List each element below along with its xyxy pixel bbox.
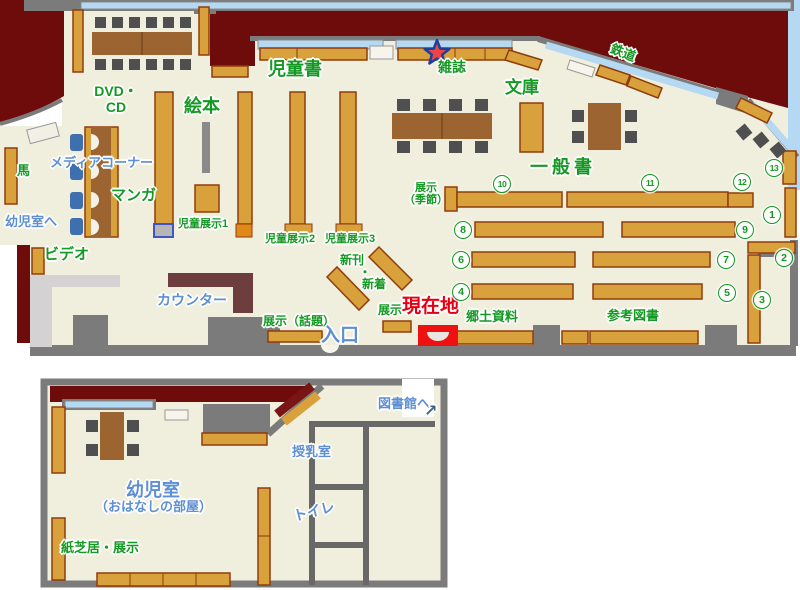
label-child-exhibit-1: 児童展示1 <box>178 219 228 231</box>
label-exhibit-season-line1: 展示 <box>396 183 456 195</box>
label-dvd-cd-line1: DVD・ <box>88 84 144 99</box>
label-local-materials: 郷土資料 <box>466 310 518 324</box>
label-dvd-cd-line2: CD <box>88 100 144 115</box>
library-floor-map: 児童書 雑誌 文庫 鉄道 絵本 DVD・ CD メディアコーナー マンガ 馬 幼… <box>0 0 800 590</box>
label-exhibit: 展示 <box>378 304 402 317</box>
label-infant-room-alt: （おはなしの部屋） <box>95 500 212 514</box>
label-picture-story-exhibit: 紙芝居・展示 <box>61 541 139 555</box>
up-right-arrow-icon: ↗ <box>424 404 437 421</box>
label-to-library: 図書館へ <box>378 397 430 411</box>
label-child-exhibit-2: 児童展示2 <box>265 234 315 246</box>
display-case <box>370 46 393 59</box>
label-bunko: 文庫 <box>505 79 539 97</box>
label-child-exhibit-3: 児童展示3 <box>325 234 375 246</box>
shelf-number-3: 3 <box>753 291 771 309</box>
label-video: ビデオ <box>44 247 89 263</box>
shelf-number-13: 13 <box>765 159 783 177</box>
label-entrance: 入口 <box>321 326 359 346</box>
shelf-number-6: 6 <box>452 251 470 269</box>
shelf-number-9: 9 <box>736 221 754 239</box>
shelf-number-7: 7 <box>717 251 735 269</box>
label-current-location: 現在地 <box>402 297 459 317</box>
shelf-number-4: 4 <box>452 283 470 301</box>
label-counter: カウンター <box>157 293 227 308</box>
current-location-marker <box>418 325 458 346</box>
shelf-number-11: 11 <box>641 174 659 192</box>
label-exhibit-season-line2: （季節） <box>396 195 456 207</box>
label-infant-room: 幼児室 <box>126 481 180 500</box>
label-to-infant-room: 幼児室へ <box>5 215 57 229</box>
label-general-books: 一般書 <box>530 158 596 177</box>
shelf-number-8: 8 <box>454 221 472 239</box>
label-reference-books: 参考図書 <box>607 309 659 323</box>
shelf-number-5: 5 <box>718 284 736 302</box>
shelf-number-1: 1 <box>763 206 781 224</box>
label-childrens-books: 児童書 <box>268 60 322 79</box>
label-picture-books: 絵本 <box>184 97 220 116</box>
label-manga: マンガ <box>111 188 156 204</box>
shelf-number-2: 2 <box>775 249 793 267</box>
label-nursing-room: 授乳室 <box>292 445 331 459</box>
label-media-corner: メディアコーナー <box>50 156 153 170</box>
shelf-number-10: 10 <box>493 175 511 193</box>
label-new-arrivals-line2: 新着 <box>362 278 386 291</box>
pillar <box>202 122 210 173</box>
label-magazines: 雑誌 <box>438 60 466 75</box>
label-horse: 馬 <box>17 164 30 178</box>
shelf-number-12: 12 <box>733 173 751 191</box>
